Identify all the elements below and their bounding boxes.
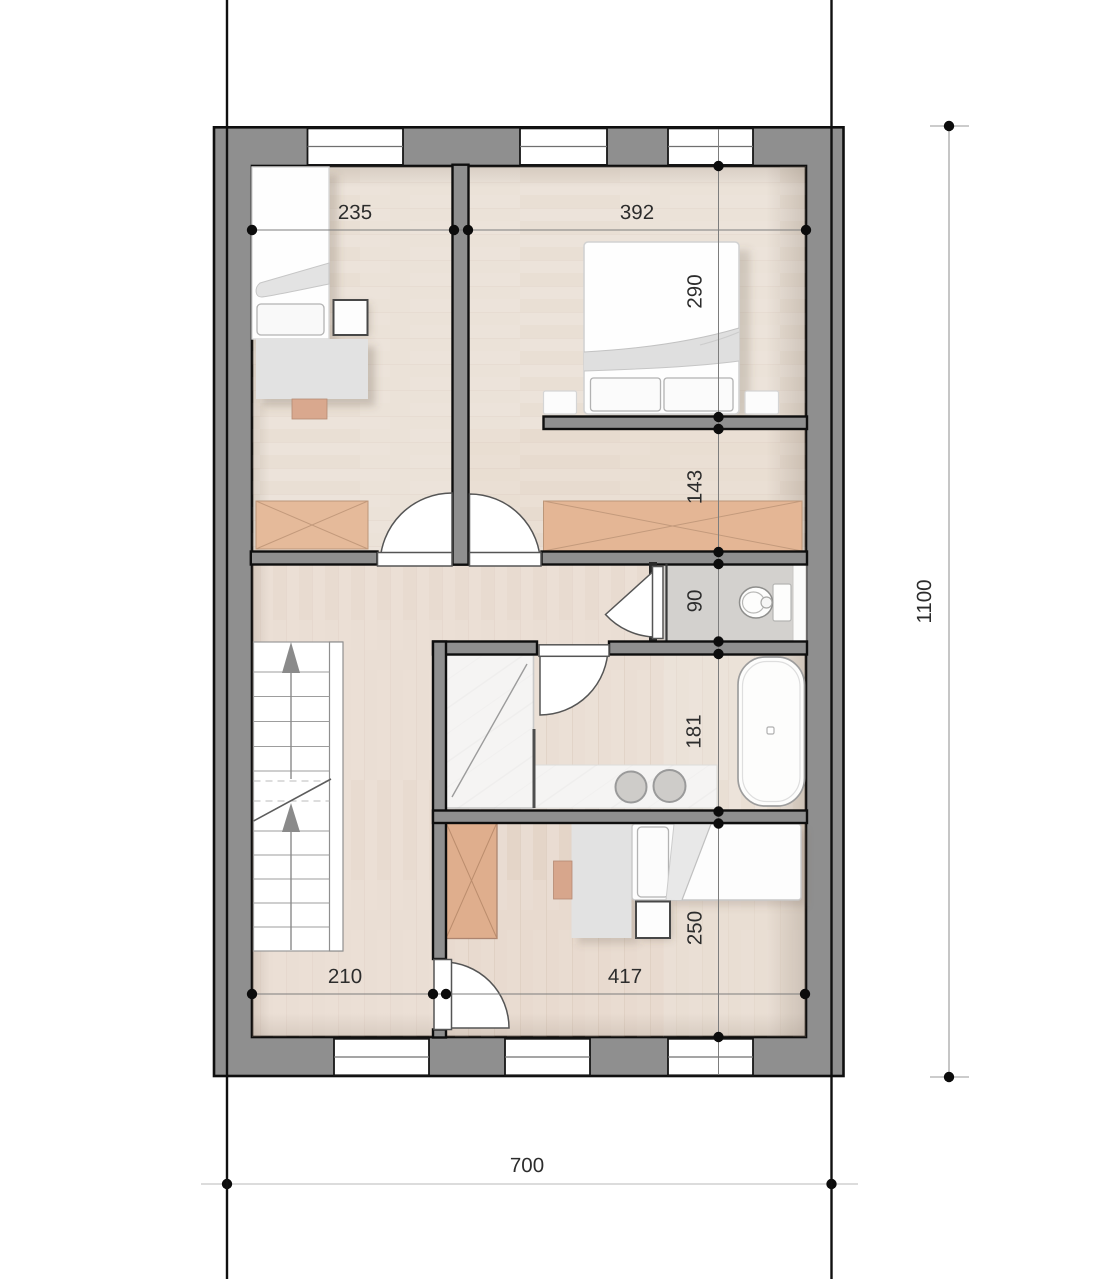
svg-text:392: 392 bbox=[620, 201, 654, 224]
svg-text:235: 235 bbox=[338, 201, 372, 224]
svg-text:250: 250 bbox=[684, 911, 707, 945]
svg-text:210: 210 bbox=[328, 965, 362, 988]
svg-text:290: 290 bbox=[684, 274, 707, 308]
svg-text:417: 417 bbox=[608, 965, 642, 988]
svg-text:1100: 1100 bbox=[913, 579, 936, 623]
svg-text:700: 700 bbox=[510, 1154, 544, 1177]
svg-text:143: 143 bbox=[684, 470, 707, 504]
svg-text:90: 90 bbox=[684, 590, 707, 613]
svg-text:181: 181 bbox=[683, 714, 706, 748]
